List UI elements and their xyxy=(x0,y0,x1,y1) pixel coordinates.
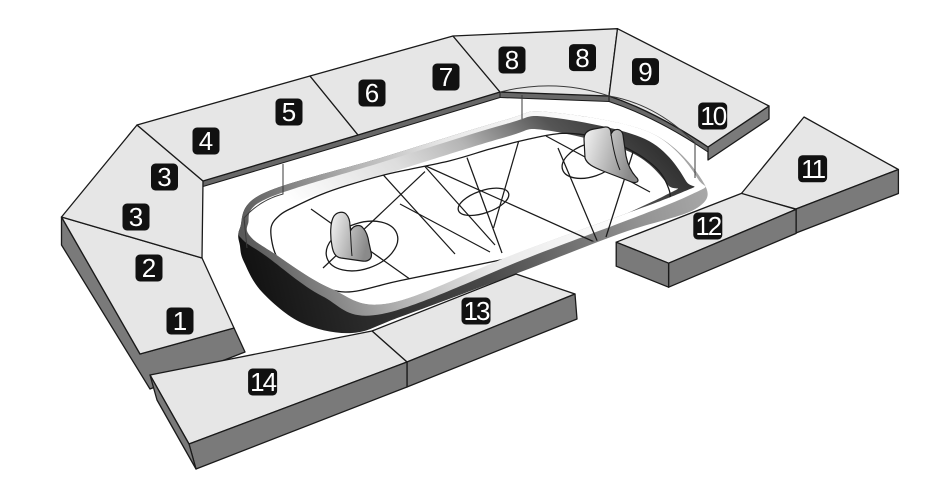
svg-text:8: 8 xyxy=(505,45,519,75)
svg-text:13: 13 xyxy=(464,296,490,326)
svg-text:4: 4 xyxy=(199,126,213,156)
svg-text:1: 1 xyxy=(173,306,187,336)
svg-text:2: 2 xyxy=(142,253,156,283)
svg-text:11: 11 xyxy=(801,154,826,184)
svg-text:9: 9 xyxy=(638,57,652,87)
svg-text:3: 3 xyxy=(129,202,143,232)
svg-text:12: 12 xyxy=(695,211,721,241)
svg-text:6: 6 xyxy=(365,78,379,108)
svg-text:14: 14 xyxy=(250,367,276,397)
svg-text:8: 8 xyxy=(575,43,589,73)
svg-text:5: 5 xyxy=(282,97,296,127)
svg-text:10: 10 xyxy=(700,101,726,131)
svg-text:7: 7 xyxy=(439,62,453,92)
svg-text:3: 3 xyxy=(157,162,171,192)
